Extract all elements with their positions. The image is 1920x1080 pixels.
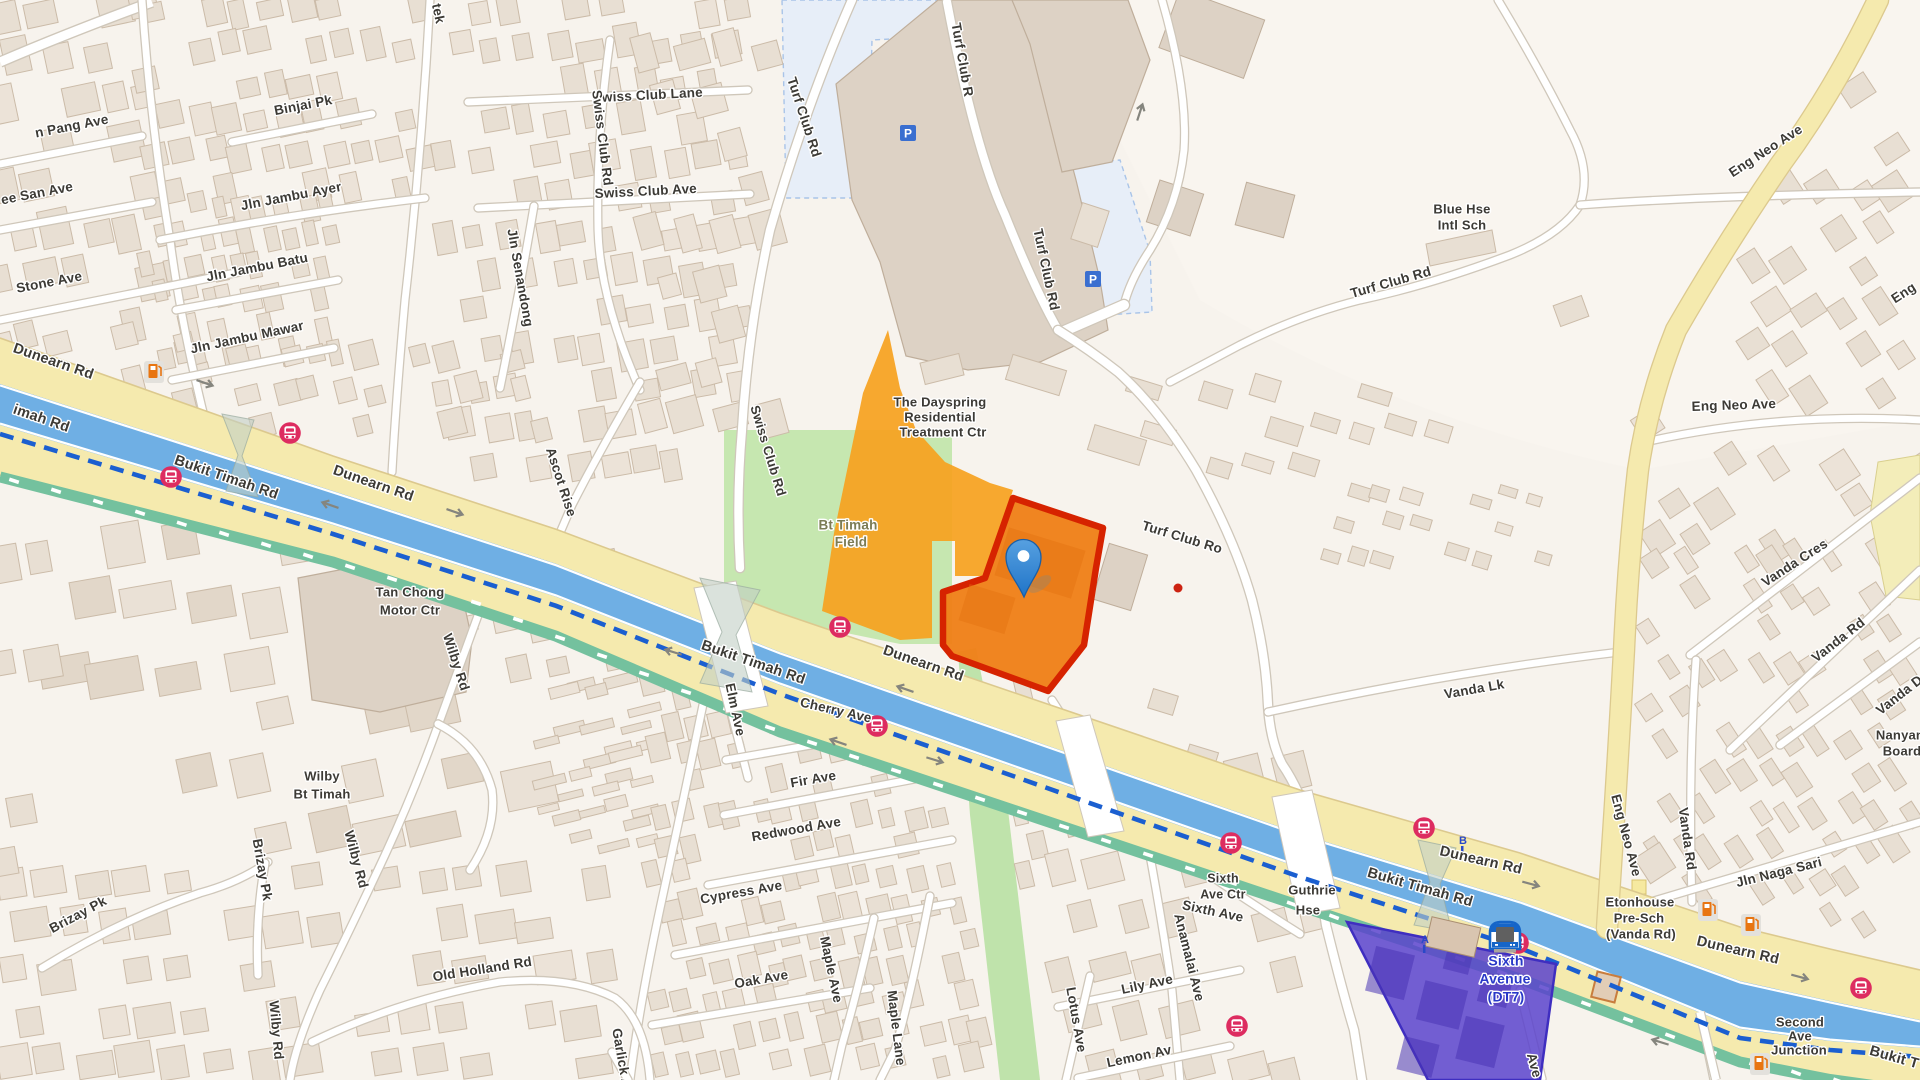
svg-text:Ave: Ave	[1788, 1029, 1812, 1044]
svg-text:Avenue: Avenue	[1479, 971, 1530, 987]
svg-text:Ave Ctr: Ave Ctr	[1200, 888, 1245, 902]
svg-text:Field: Field	[835, 535, 868, 550]
svg-text:Bt Timah: Bt Timah	[818, 518, 877, 533]
svg-text:Intl Sch: Intl Sch	[1438, 218, 1487, 233]
svg-text:Motor Ctr: Motor Ctr	[380, 603, 440, 618]
svg-text:Residential: Residential	[904, 410, 976, 425]
svg-text:Second: Second	[1776, 1015, 1824, 1030]
svg-text:Sixth: Sixth	[1207, 872, 1239, 886]
svg-text:Treatment Ctr: Treatment Ctr	[899, 425, 986, 440]
svg-text:Bt Timah: Bt Timah	[294, 787, 351, 802]
svg-text:B: B	[1459, 835, 1467, 847]
svg-text:Blue Hse: Blue Hse	[1433, 202, 1490, 217]
svg-text:(Vanda Rd): (Vanda Rd)	[1606, 927, 1676, 942]
svg-text:P: P	[904, 127, 912, 141]
svg-text:(DT7): (DT7)	[1488, 989, 1525, 1005]
svg-text:Nanyan: Nanyan	[1876, 728, 1920, 743]
svg-text:Junction: Junction	[1771, 1043, 1827, 1058]
svg-text:The Dayspring: The Dayspring	[894, 395, 987, 410]
svg-text:Hse: Hse	[1296, 903, 1320, 918]
svg-text:P: P	[1089, 273, 1097, 287]
svg-text:Wilby: Wilby	[304, 769, 340, 784]
svg-text:Tan Chong: Tan Chong	[376, 585, 445, 600]
svg-text:Board: Board	[1883, 744, 1920, 759]
svg-text:Pre-Sch: Pre-Sch	[1614, 911, 1665, 926]
svg-text:Etonhouse: Etonhouse	[1606, 895, 1675, 910]
svg-text:Sixth: Sixth	[1488, 953, 1523, 969]
svg-text:Eng Neo Ave: Eng Neo Ave	[1691, 396, 1776, 414]
svg-text:Guthrie: Guthrie	[1288, 883, 1336, 898]
svg-text:A: A	[1421, 934, 1429, 946]
